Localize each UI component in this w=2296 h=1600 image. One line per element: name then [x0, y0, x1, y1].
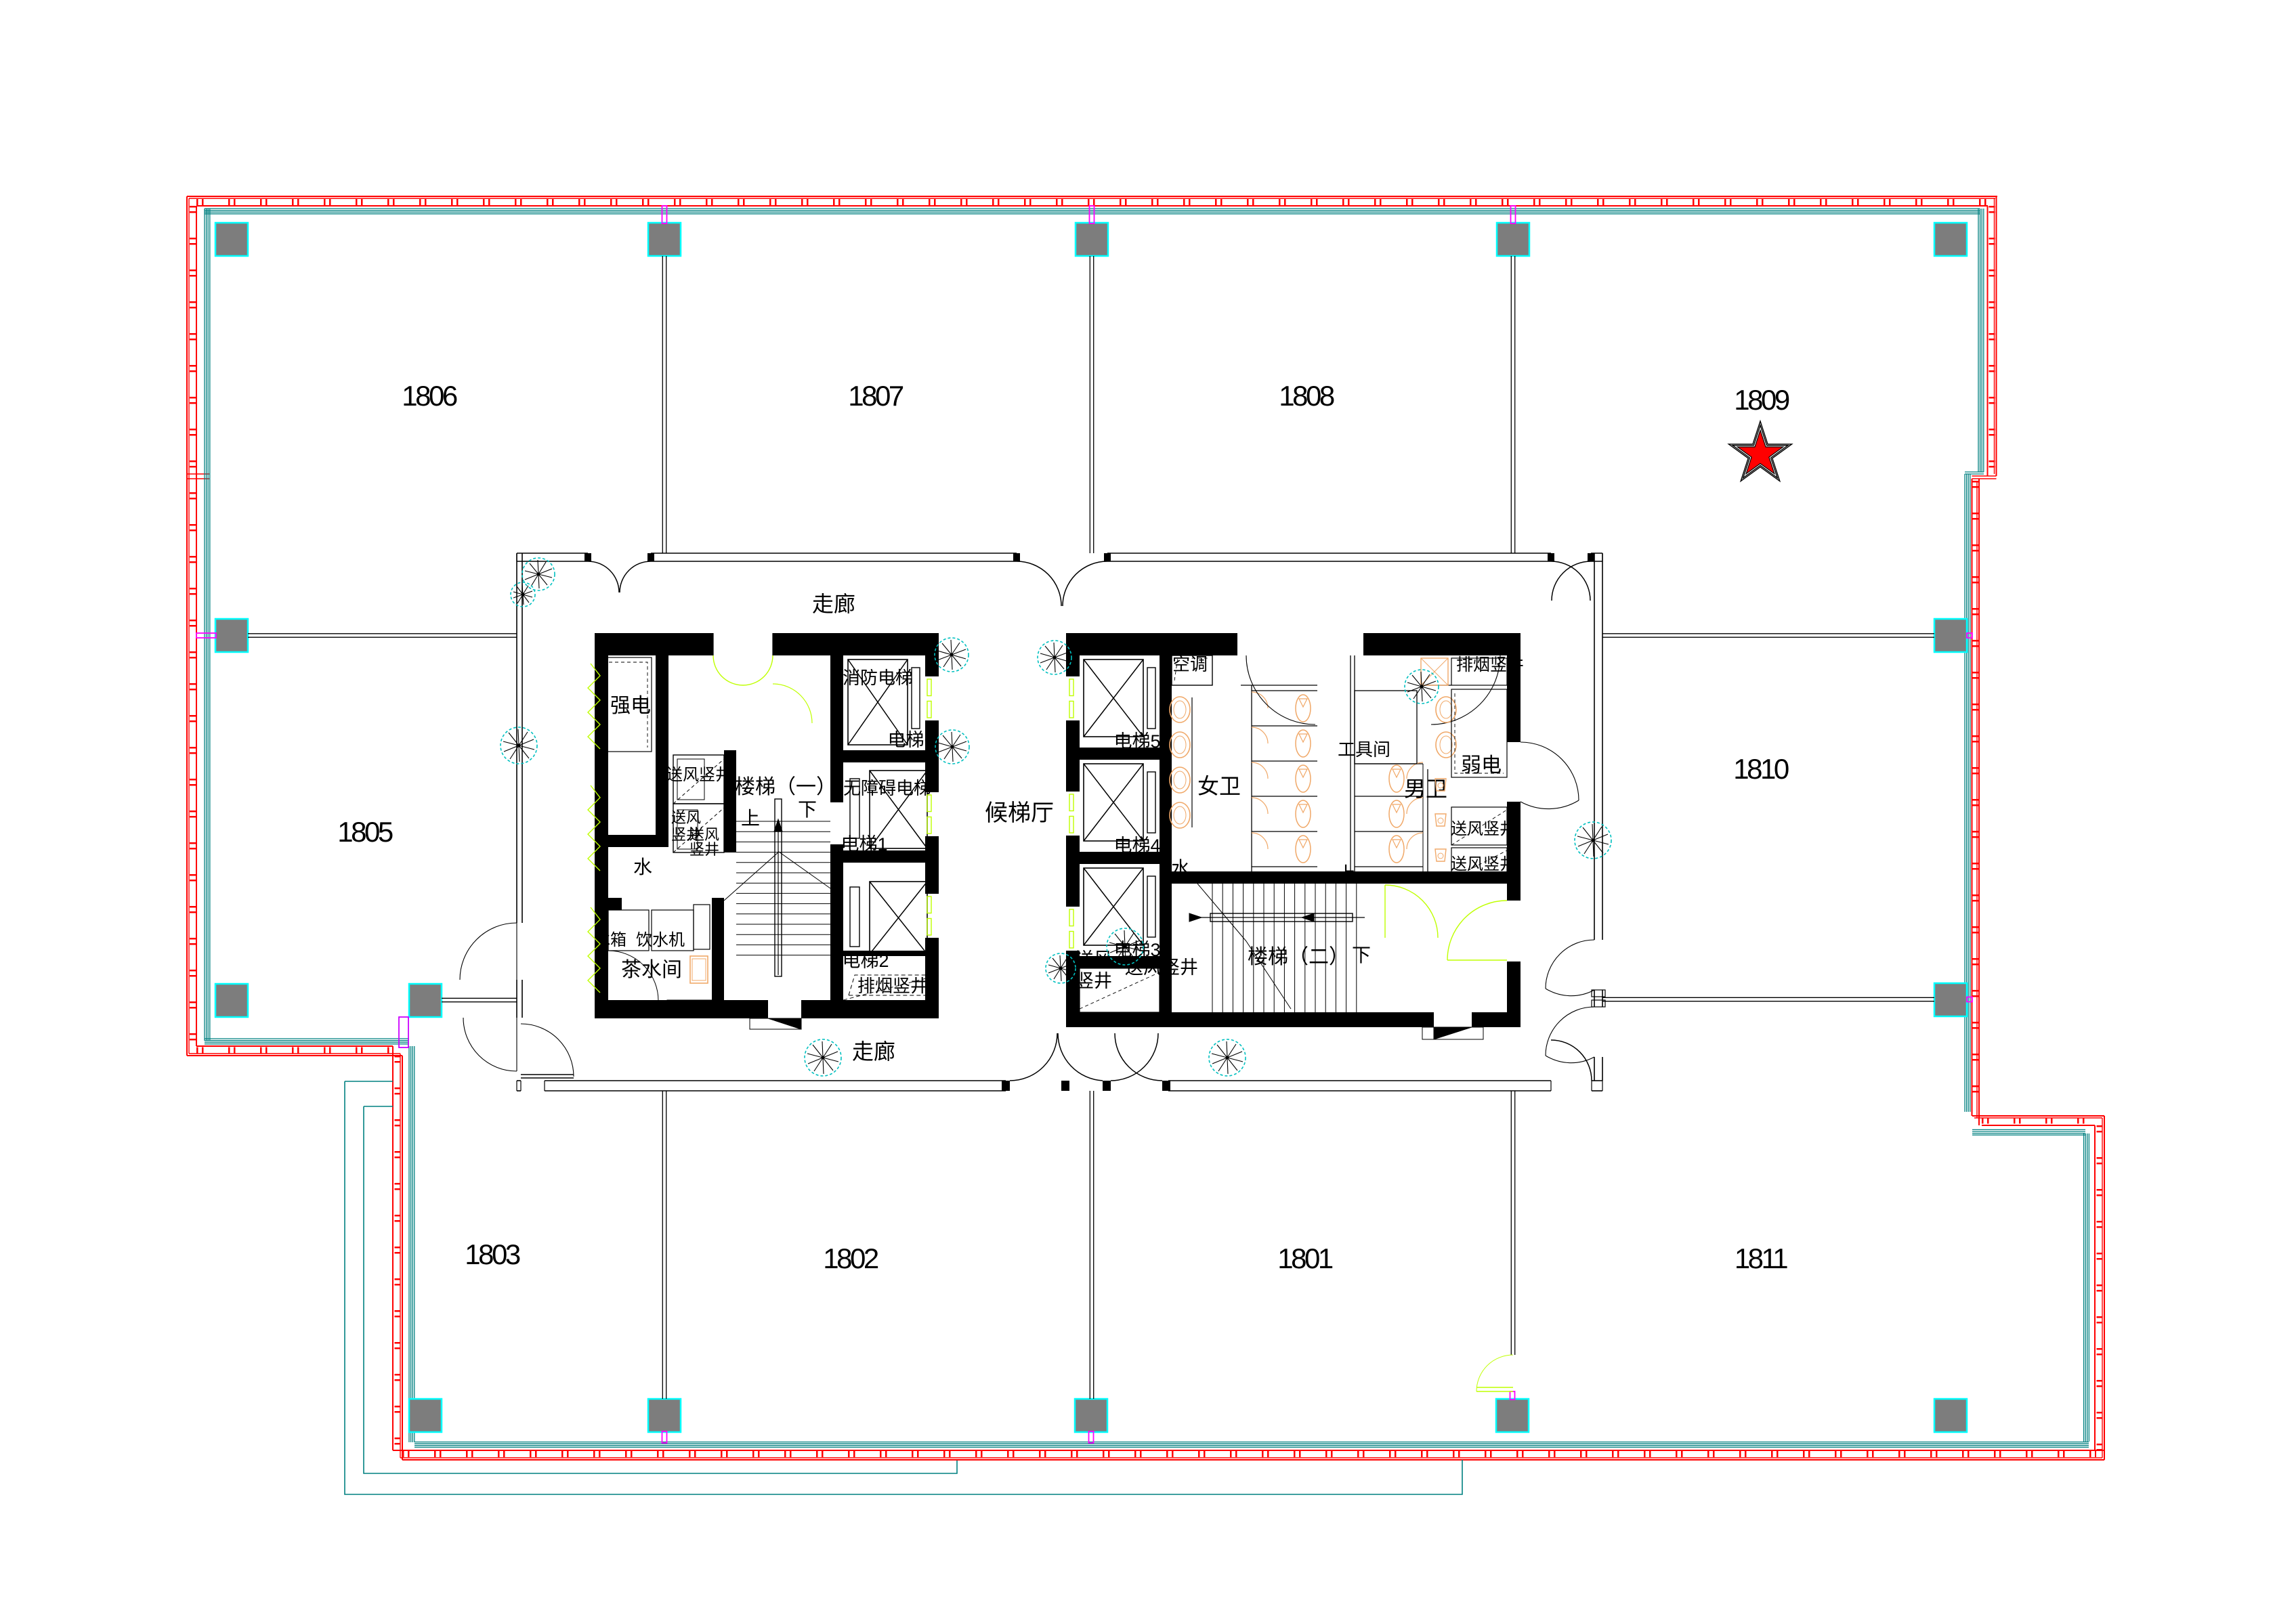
svg-text:排烟竖井: 排烟竖井	[857, 976, 928, 996]
svg-text:电梯2: 电梯2	[842, 951, 889, 971]
svg-text:1802: 1802	[823, 1242, 878, 1274]
svg-text:电梯6: 电梯6	[887, 730, 934, 750]
svg-text:候梯厅: 候梯厅	[985, 800, 1054, 826]
svg-text:电梯5: 电梯5	[1113, 731, 1160, 752]
svg-text:茶水间: 茶水间	[621, 959, 682, 981]
svg-text:送风: 送风	[1076, 949, 1112, 970]
svg-text:弱电: 弱电	[1461, 754, 1502, 777]
svg-text:1811: 1811	[1735, 1242, 1787, 1274]
svg-text:上: 上	[1337, 863, 1356, 884]
svg-text:1805: 1805	[337, 816, 393, 848]
svg-text:1806: 1806	[402, 380, 457, 412]
svg-text:送风竖井: 送风竖井	[1125, 957, 1198, 978]
svg-text:电梯4: 电梯4	[1113, 836, 1160, 856]
svg-text:排烟竖井: 排烟竖井	[1456, 655, 1524, 674]
svg-text:送风竖井: 送风竖井	[1451, 820, 1516, 838]
svg-text:电梯1: 电梯1	[841, 834, 887, 855]
svg-text:竖井: 竖井	[689, 841, 719, 858]
svg-text:送风竖井: 送风竖井	[666, 766, 731, 784]
svg-text:消防电梯: 消防电梯	[843, 668, 913, 688]
svg-text:竖井: 竖井	[1076, 971, 1112, 991]
svg-text:1803: 1803	[465, 1238, 520, 1270]
svg-text:1808: 1808	[1279, 380, 1334, 412]
svg-text:强电: 强电	[610, 695, 651, 717]
svg-text:冰箱: 冰箱	[594, 931, 626, 949]
svg-text:工具间: 工具间	[1338, 739, 1390, 760]
svg-text:女卫: 女卫	[1197, 774, 1241, 798]
svg-text:1801: 1801	[1277, 1242, 1333, 1274]
svg-text:下: 下	[1352, 945, 1371, 966]
svg-text:送风: 送风	[671, 809, 701, 826]
svg-text:饮水机: 饮水机	[636, 931, 685, 949]
svg-text:无障碍电梯: 无障碍电梯	[843, 778, 931, 798]
svg-text:楼梯（二）: 楼梯（二）	[1248, 946, 1349, 968]
svg-text:1807: 1807	[848, 380, 903, 412]
svg-text:男卫: 男卫	[1404, 777, 1447, 801]
svg-text:1810: 1810	[1733, 753, 1789, 785]
svg-text:水: 水	[1171, 858, 1190, 879]
svg-text:下: 下	[798, 799, 817, 820]
svg-text:1809: 1809	[1734, 384, 1789, 416]
svg-text:楼梯（一）: 楼梯（一）	[735, 776, 836, 798]
svg-text:走廊: 走廊	[812, 592, 855, 616]
svg-text:水: 水	[633, 857, 652, 878]
svg-text:送风竖井: 送风竖井	[1451, 855, 1516, 873]
svg-text:空调: 空调	[1172, 654, 1208, 674]
svg-text:上: 上	[741, 808, 760, 829]
svg-text:走廊: 走廊	[852, 1039, 895, 1064]
